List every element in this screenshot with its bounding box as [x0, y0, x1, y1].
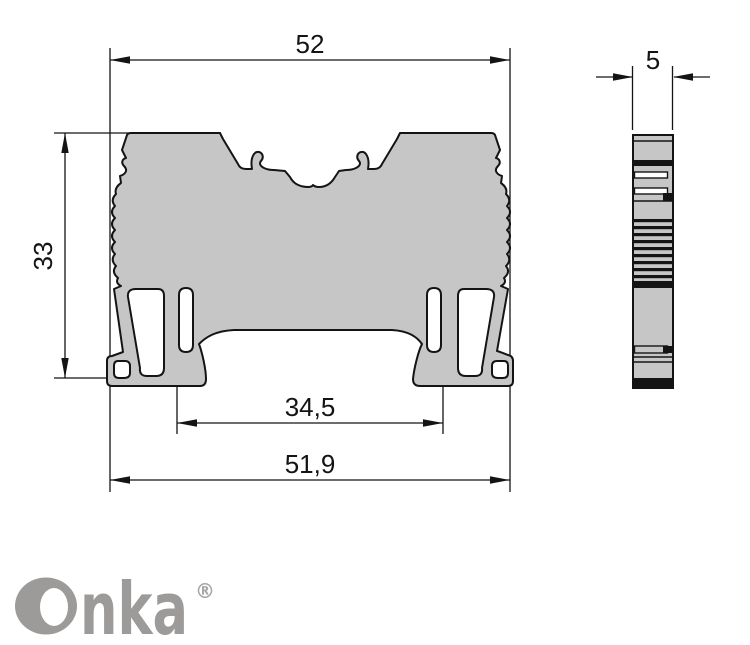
technical-drawing: 52 5 33 34,5 51,9 nka ® [0, 0, 750, 645]
arrowhead-down-icon [61, 358, 68, 378]
arrowhead-right-icon [490, 56, 510, 63]
side-view-clip-tab-lower [663, 346, 672, 353]
arrowhead-up-icon [61, 133, 68, 153]
registered-mark: ® [195, 579, 215, 603]
dimension-height: 33 [28, 133, 69, 378]
dimension-depth: 5 [596, 45, 710, 81]
arrowhead-left-icon [613, 73, 633, 81]
arrowhead-right-icon [490, 476, 510, 483]
logo-o-counter [40, 588, 68, 626]
front-view [107, 133, 513, 386]
logo-text-tail: nka [80, 567, 188, 645]
dimension-base-width: 51,9 [110, 449, 510, 484]
side-view-band-upper [633, 160, 673, 166]
front-view-body [107, 133, 513, 386]
side-view-clip-slot-1 [635, 172, 668, 178]
side-view-band-lower [633, 378, 673, 387]
side-view [633, 135, 673, 388]
dimension-label-base-width: 51,9 [285, 449, 336, 479]
arrowhead-left-icon [177, 419, 197, 426]
side-view-clip-slot-3 [635, 346, 668, 353]
dimension-overall-width: 52 [110, 29, 510, 64]
dimension-label-height: 33 [28, 242, 58, 271]
arrowhead-right-icon [423, 419, 443, 426]
dimension-rail-slot-width: 34,5 [177, 392, 443, 427]
side-view-clip-slot-2 [635, 188, 668, 194]
arrowhead-left-icon [110, 56, 130, 63]
arrowhead-right-icon [673, 73, 693, 81]
dimension-label-depth: 5 [646, 45, 660, 75]
dimension-label-rail-slot-width: 34,5 [285, 392, 336, 422]
arrowhead-left-icon [110, 476, 130, 483]
drawing-page: 52 5 33 34,5 51,9 nka ® [0, 0, 750, 645]
side-view-clip-tab-upper [663, 193, 672, 201]
onka-logo: nka ® [15, 567, 215, 645]
dimension-label-overall-width: 52 [296, 29, 325, 59]
